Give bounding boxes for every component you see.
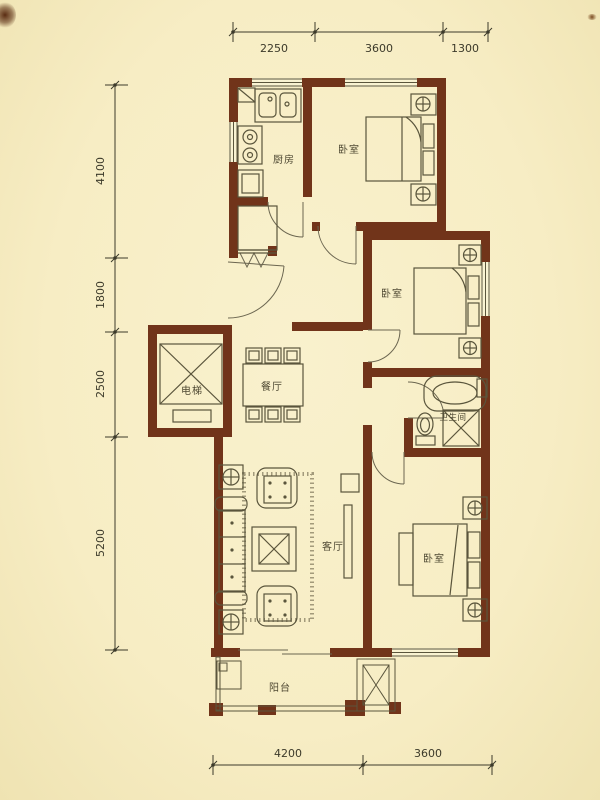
toilet [416, 413, 435, 445]
dining-chair [246, 348, 262, 363]
bedroom-top-furniture [366, 94, 436, 205]
dimension-left: 4100 1800 2500 5200 [94, 81, 128, 654]
equipment-platform [357, 659, 395, 711]
living-label: 客厅 [322, 540, 344, 553]
bedroom-top-label: 卧室 [338, 143, 360, 156]
dim-top-1: 2250 [260, 42, 288, 55]
bathroom-label: 卫生间 [439, 412, 466, 423]
tv-cabinet [341, 474, 359, 578]
kitchen-window [252, 78, 302, 87]
dim-left-4: 5200 [94, 529, 107, 557]
entry-door [228, 262, 284, 318]
dim-left-3: 2500 [94, 370, 107, 398]
dim-top-2: 3600 [365, 42, 393, 55]
dining-label: 餐厅 [261, 380, 283, 393]
dimension-top: 2250 3600 1300 [229, 22, 492, 55]
nightstand [459, 245, 481, 265]
balcony-label: 阳台 [269, 681, 291, 694]
dining-chair [284, 348, 300, 363]
bedroom-top-window [345, 78, 417, 87]
floor-plan: 2250 3600 1300 4100 1800 2500 5200 [0, 0, 600, 800]
elevator-car [160, 344, 222, 422]
dining-chair [265, 348, 281, 363]
dining-chair [246, 407, 262, 422]
bedroom-middle-furniture [414, 245, 481, 358]
dim-bottom-2: 3600 [414, 747, 442, 760]
elevator-label: 电梯 [181, 384, 203, 397]
dining-chair [284, 407, 300, 422]
dimension-bottom: 4200 3600 [209, 747, 496, 775]
bedroom-middle-door [368, 330, 400, 362]
dim-top-3: 1300 [451, 42, 479, 55]
kitchen-alcove [238, 206, 277, 253]
nightstand [411, 184, 436, 205]
balcony-sliding-door [238, 650, 332, 654]
kitchen-label: 厨房 [273, 153, 295, 166]
bedroom-bottom-window [392, 648, 458, 657]
dim-bottom-1: 4200 [274, 747, 302, 760]
bedroom-bottom-label: 卧室 [423, 552, 445, 565]
balcony-structure [216, 657, 395, 711]
kitchen-door [268, 202, 303, 237]
bedroom-middle-label: 卧室 [381, 287, 403, 300]
dim-left-1: 4100 [94, 157, 107, 185]
windows [229, 78, 490, 657]
nightstand [411, 94, 436, 115]
dim-left-2: 1800 [94, 281, 107, 309]
coffee-table [252, 527, 296, 571]
bathroom-fixtures [416, 376, 487, 446]
washing-machine [217, 661, 241, 689]
walls [148, 78, 490, 716]
bedroom-bottom-door [372, 452, 404, 484]
bedroom-middle-window [481, 262, 490, 316]
scan-mark [587, 14, 597, 20]
kitchen-side-window [229, 122, 238, 162]
nightstand [459, 338, 481, 358]
kitchen-fixtures [238, 88, 301, 197]
dining-chair [265, 407, 281, 422]
floor-plan-page: 2250 3600 1300 4100 1800 2500 5200 [0, 0, 600, 800]
bedroom-top-door [318, 226, 356, 264]
